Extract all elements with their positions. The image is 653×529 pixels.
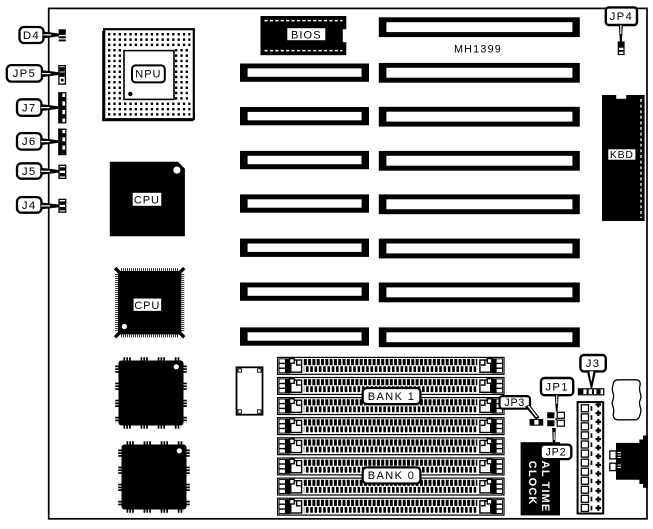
svg-text:AL TIME: AL TIME (539, 461, 551, 513)
svg-text:JP5: JP5 (13, 68, 37, 80)
svg-text:J6: J6 (22, 136, 37, 148)
svg-text:D4: D4 (23, 30, 40, 42)
svg-text:BIOS: BIOS (291, 29, 322, 41)
svg-text:J3: J3 (586, 358, 601, 370)
svg-text:NPU: NPU (135, 69, 161, 81)
svg-text:CLOCK: CLOCK (526, 461, 538, 506)
svg-text:J7: J7 (22, 102, 37, 114)
svg-text:J4: J4 (22, 200, 37, 212)
svg-text:CPU: CPU (134, 195, 160, 207)
svg-text:JP3: JP3 (504, 397, 525, 409)
svg-text:J5: J5 (22, 166, 37, 178)
svg-text:JP4: JP4 (610, 11, 634, 23)
svg-text:MH1399: MH1399 (454, 43, 502, 55)
svg-text:KBD: KBD (610, 150, 634, 161)
svg-text:BANK 1: BANK 1 (368, 391, 416, 403)
svg-text:JP1: JP1 (545, 381, 569, 393)
svg-text:CPU: CPU (134, 300, 160, 312)
svg-text:JP2: JP2 (545, 447, 566, 459)
svg-text:BANK 0: BANK 0 (368, 470, 416, 482)
